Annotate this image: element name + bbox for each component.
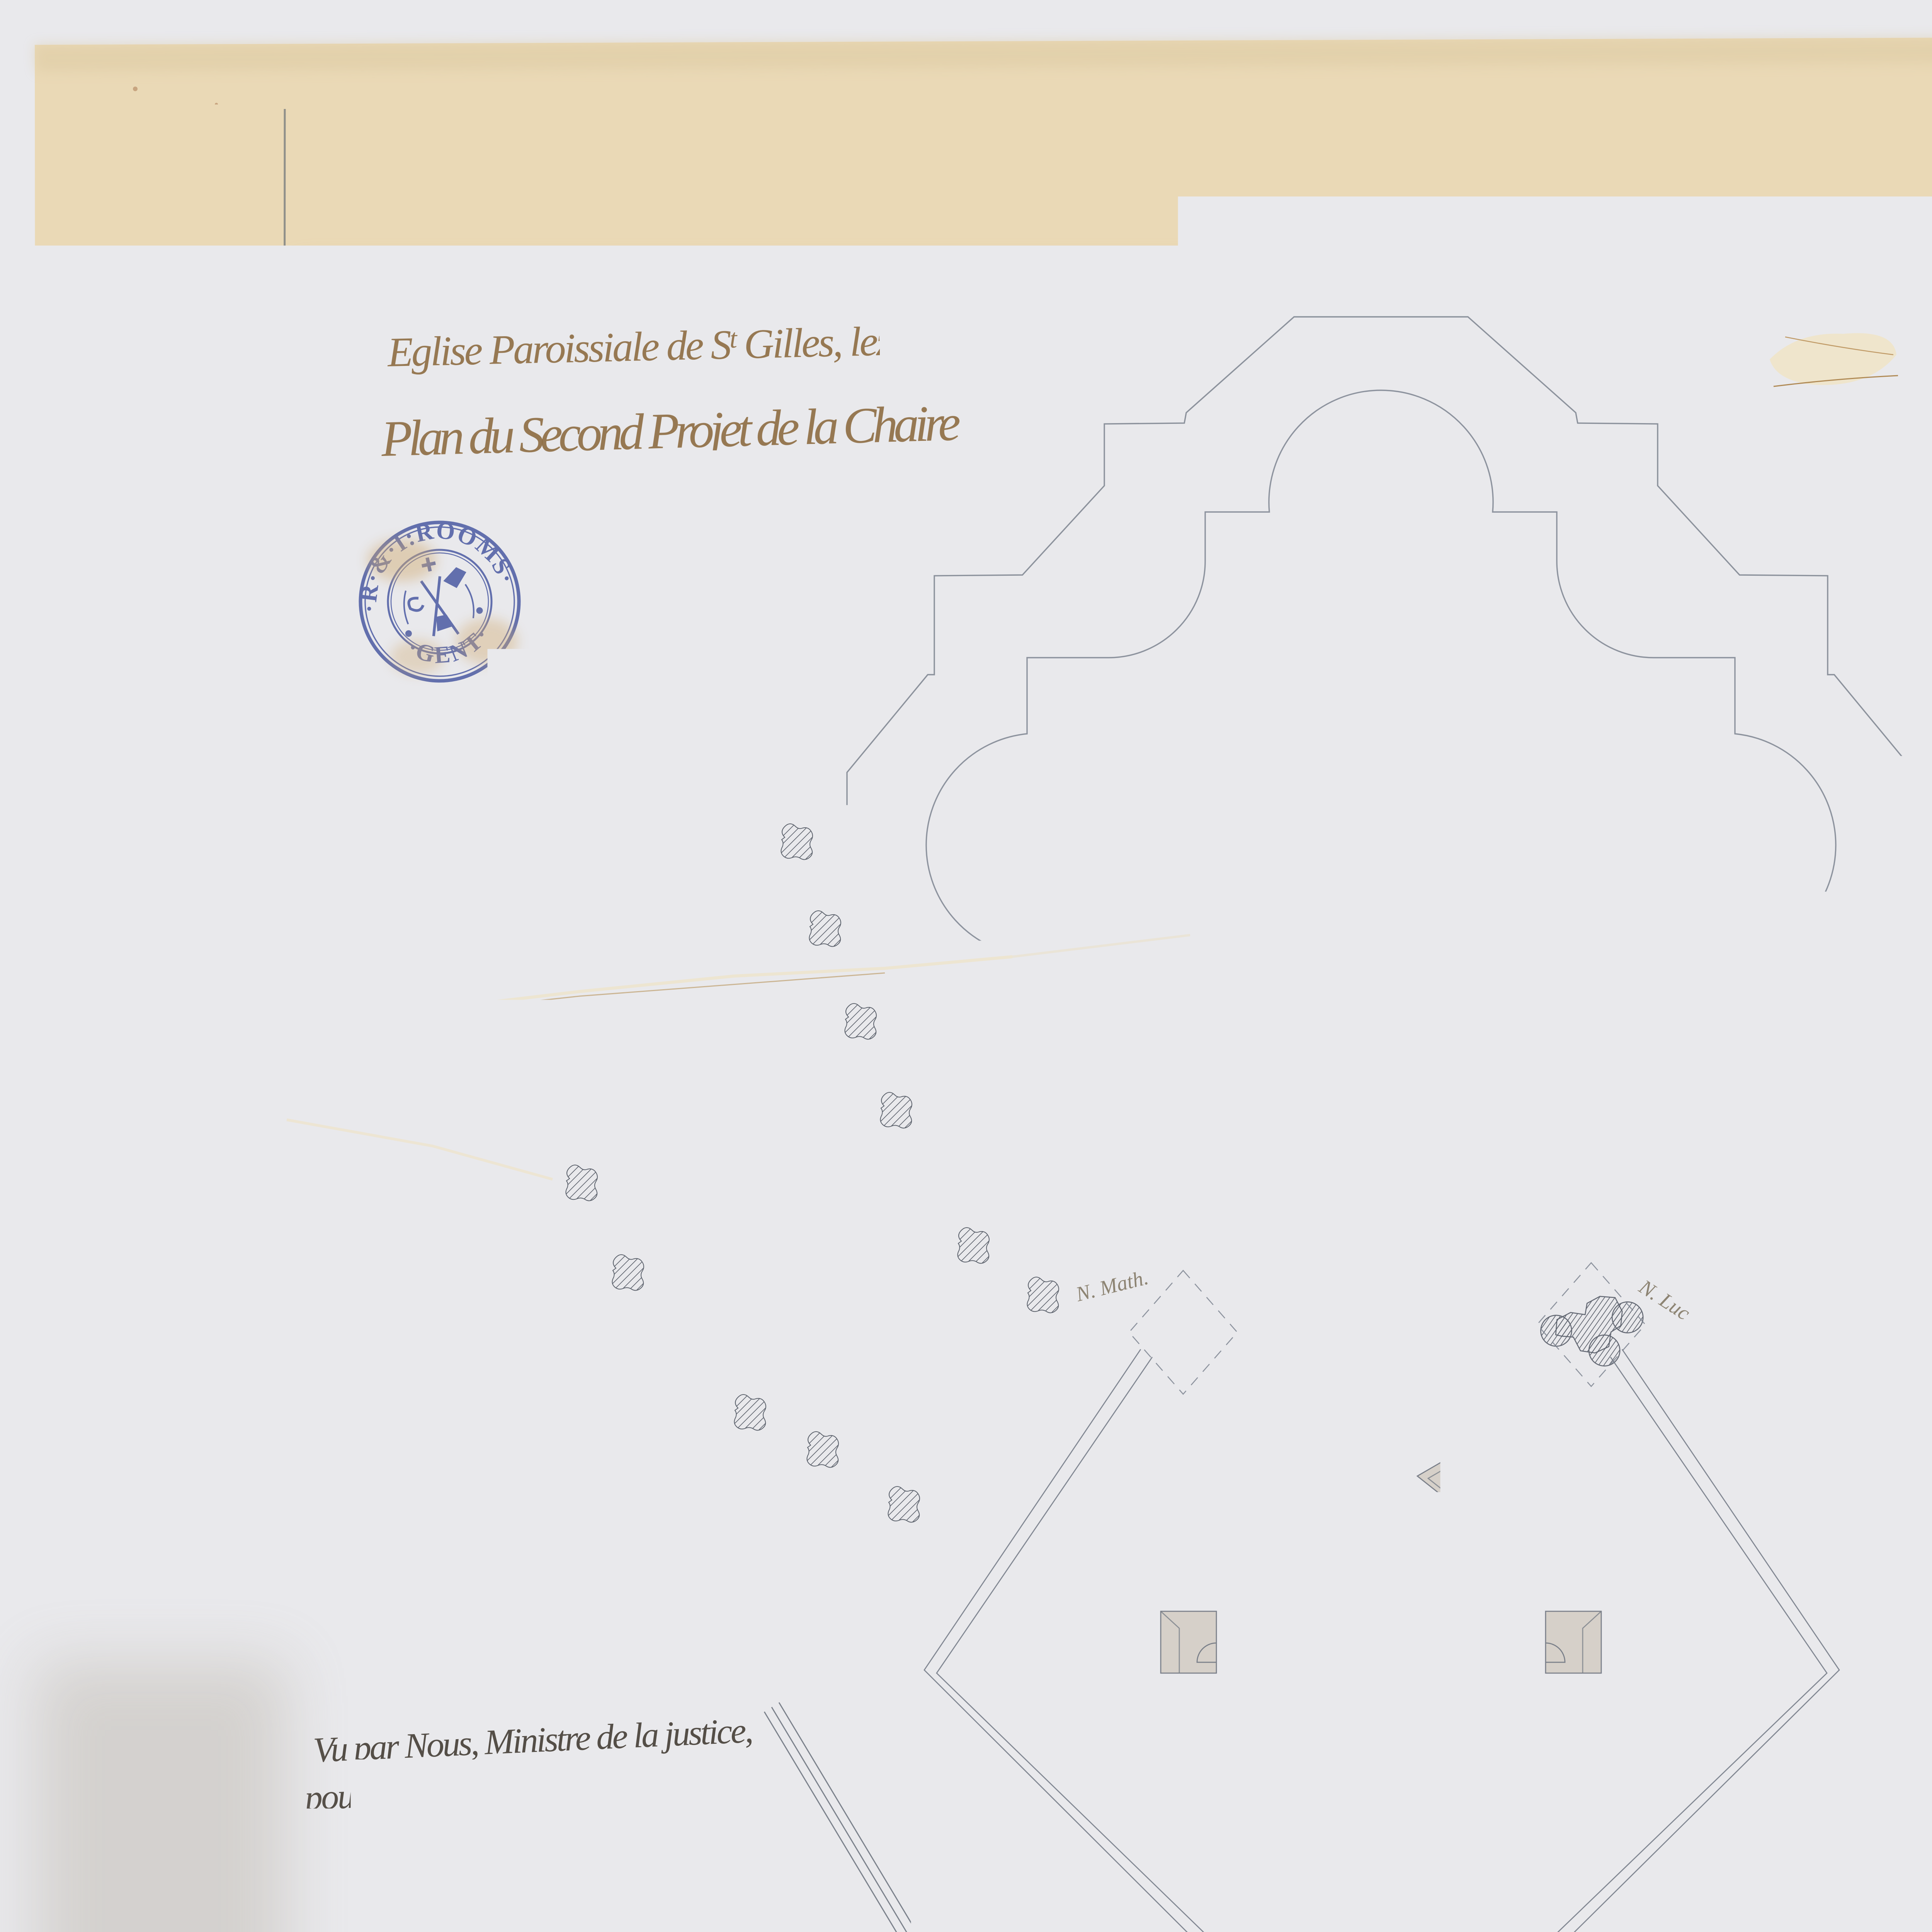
- svg-text:+: +: [1816, 1627, 1827, 1649]
- svg-text:Echelle 10 %.: Echelle 10 %.: [603, 480, 812, 529]
